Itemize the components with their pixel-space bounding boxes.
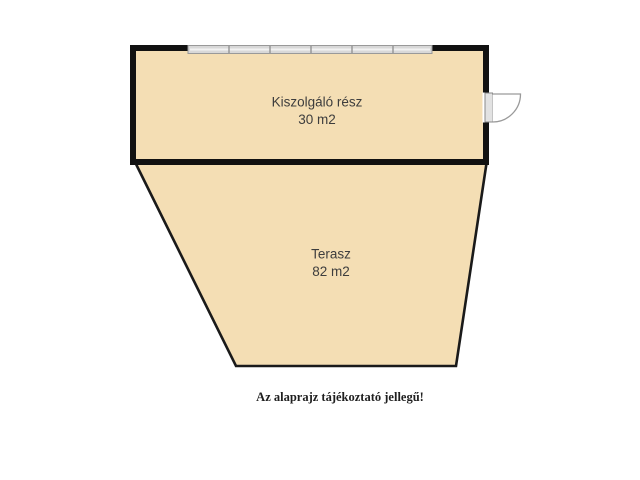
kiszolgalo-room-area: 30 m2 xyxy=(298,112,336,127)
terasz-room-shape xyxy=(134,160,487,366)
terasz-room-name: Terasz xyxy=(311,247,351,262)
floor-plan-drawing: Kiszolgáló rész 30 m2 Terasz 82 m2 Az al… xyxy=(0,0,640,480)
door-swing-icon xyxy=(483,93,521,123)
window-icon xyxy=(188,46,432,54)
terasz-room-area: 82 m2 xyxy=(312,264,350,279)
kiszolgalo-room-name: Kiszolgáló rész xyxy=(272,95,363,110)
disclaimer-caption: Az alaprajz tájékoztató jellegű! xyxy=(256,390,424,404)
door-jamb xyxy=(485,93,493,122)
floor-plan-page: Kiszolgáló rész 30 m2 Terasz 82 m2 Az al… xyxy=(0,0,640,480)
door-leaf-and-arc xyxy=(493,94,521,122)
